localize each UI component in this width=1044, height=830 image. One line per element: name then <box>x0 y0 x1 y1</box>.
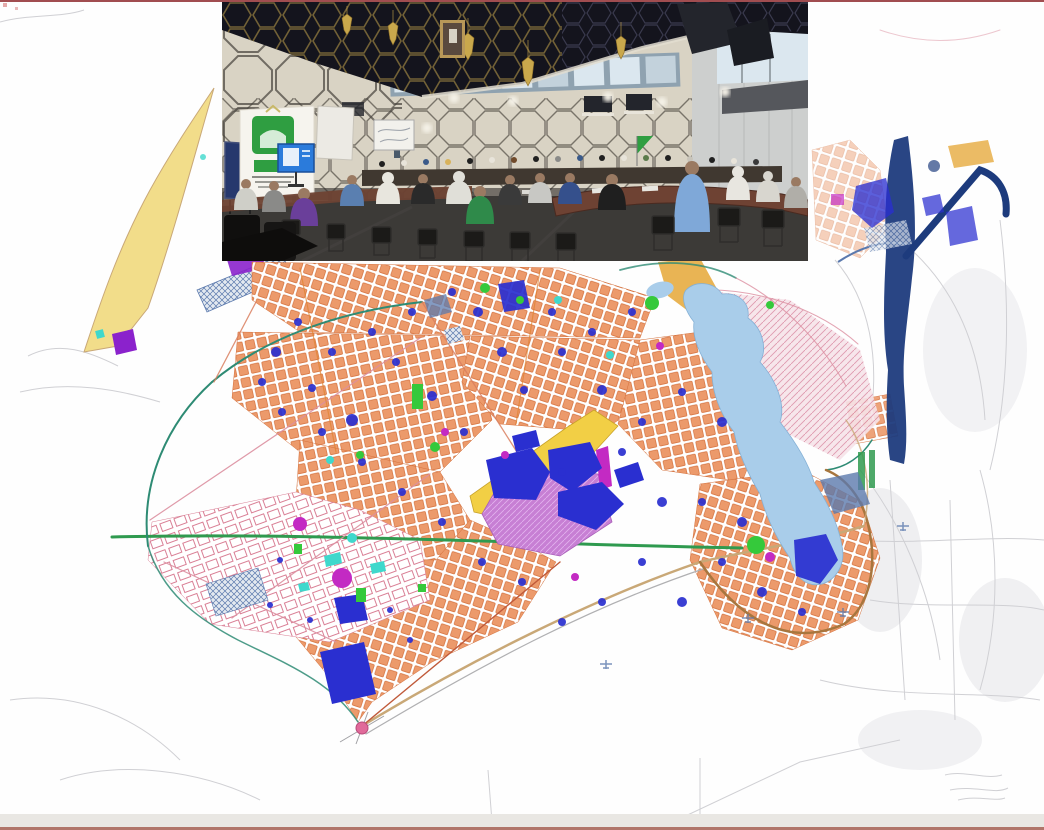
bottom-band <box>0 814 1044 827</box>
slide <box>0 0 1044 830</box>
meeting-photo-inset <box>222 2 808 261</box>
road-node <box>356 722 368 734</box>
central-cluster <box>470 410 644 556</box>
meeting-photo-illustration <box>222 2 808 261</box>
framed-picture <box>440 20 465 58</box>
top-border-rule <box>0 0 1044 2</box>
yellow-zone-west <box>84 88 214 355</box>
projection-screen <box>316 106 354 160</box>
yellow-wedge <box>84 88 214 352</box>
wall-map-screen <box>374 120 414 150</box>
